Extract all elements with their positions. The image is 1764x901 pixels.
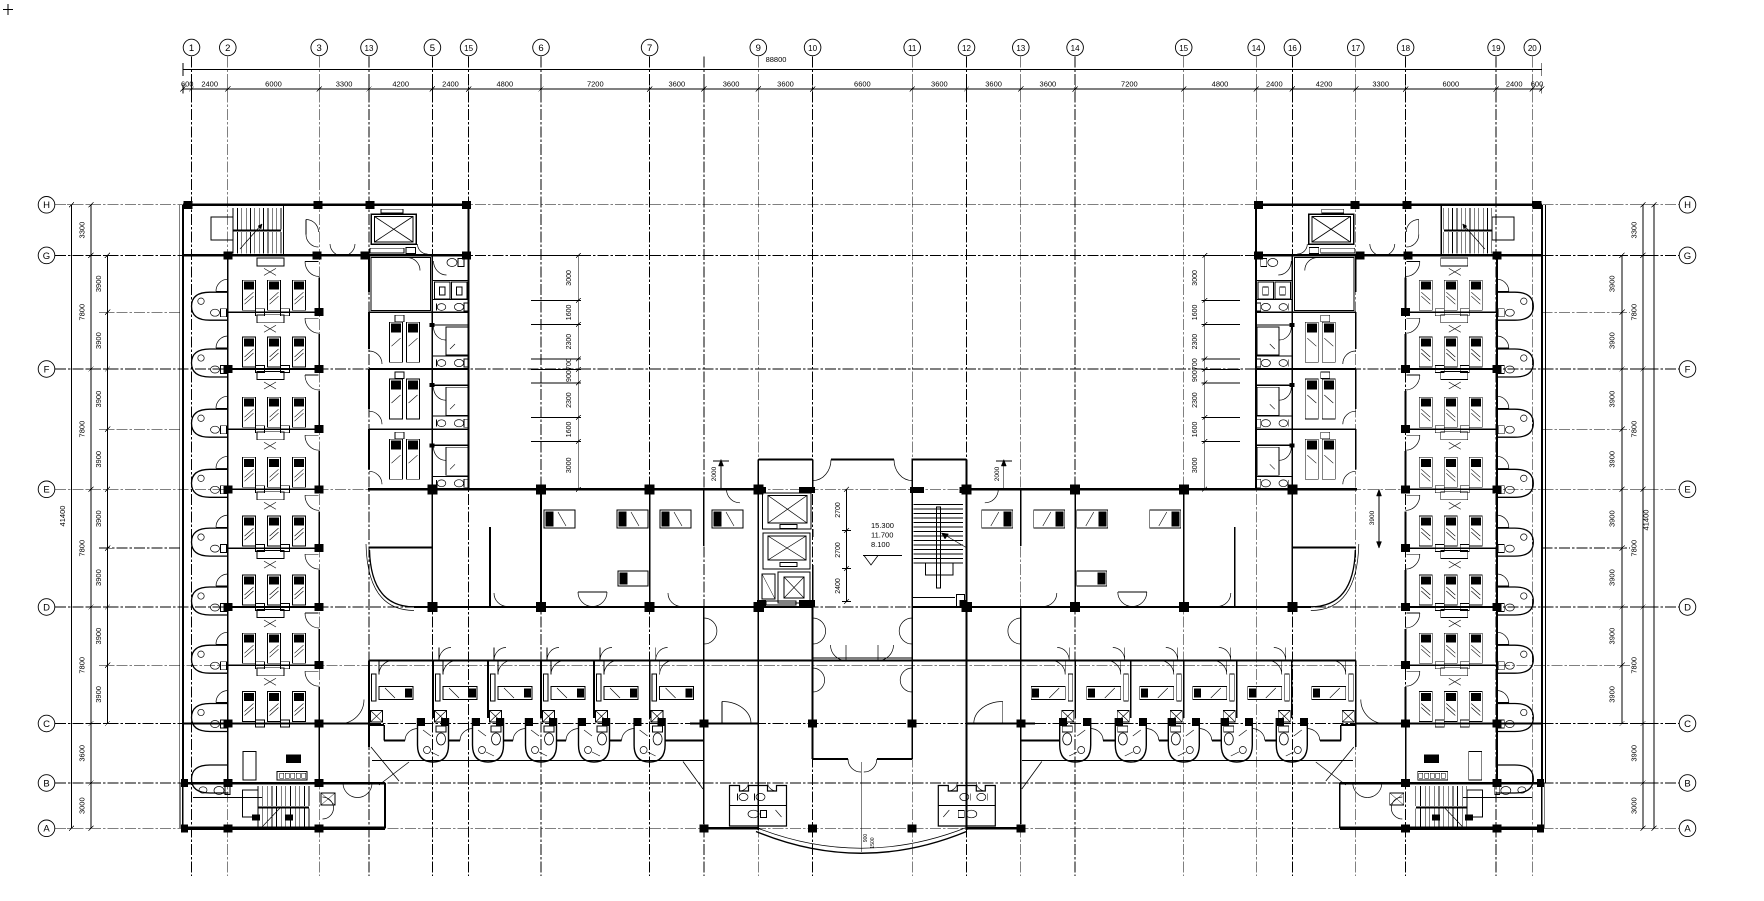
svg-text:11: 11 xyxy=(908,44,917,53)
svg-text:18: 18 xyxy=(1401,44,1410,53)
svg-text:600: 600 xyxy=(181,80,194,89)
svg-text:5: 5 xyxy=(430,43,435,54)
svg-text:13: 13 xyxy=(365,44,374,53)
svg-text:3900: 3900 xyxy=(1608,391,1617,408)
svg-text:17: 17 xyxy=(1351,44,1360,53)
svg-text:3900: 3900 xyxy=(1630,745,1639,762)
svg-text:2000: 2000 xyxy=(711,466,718,481)
svg-text:1600: 1600 xyxy=(1192,305,1199,321)
svg-text:7800: 7800 xyxy=(1630,657,1639,674)
svg-text:3600: 3600 xyxy=(985,80,1002,89)
svg-text:2700: 2700 xyxy=(835,542,842,558)
svg-text:7800: 7800 xyxy=(78,657,87,674)
svg-text:2000: 2000 xyxy=(994,466,1001,481)
svg-text:7800: 7800 xyxy=(1630,540,1639,557)
svg-text:3900: 3900 xyxy=(1608,569,1617,586)
svg-text:19: 19 xyxy=(1492,44,1501,53)
svg-text:3900: 3900 xyxy=(1369,510,1376,525)
svg-text:3000: 3000 xyxy=(1630,797,1639,814)
svg-text:2300: 2300 xyxy=(566,334,573,350)
svg-text:G: G xyxy=(1684,251,1691,262)
svg-text:4800: 4800 xyxy=(496,80,513,89)
svg-text:1: 1 xyxy=(189,43,194,54)
svg-text:900: 900 xyxy=(1192,370,1199,382)
svg-text:3900: 3900 xyxy=(1608,275,1617,292)
svg-text:3600: 3600 xyxy=(777,80,794,89)
svg-text:3000: 3000 xyxy=(566,457,573,473)
svg-text:900: 900 xyxy=(863,834,869,843)
svg-text:7800: 7800 xyxy=(78,540,87,557)
svg-text:3: 3 xyxy=(317,43,322,54)
svg-text:3900: 3900 xyxy=(94,569,103,586)
svg-text:3000: 3000 xyxy=(1192,270,1199,286)
svg-text:14: 14 xyxy=(1071,44,1080,53)
svg-text:700: 700 xyxy=(1192,358,1199,370)
svg-text:3900: 3900 xyxy=(1608,628,1617,645)
svg-text:3900: 3900 xyxy=(1608,686,1617,703)
svg-text:9: 9 xyxy=(756,43,761,54)
svg-text:3900: 3900 xyxy=(94,686,103,703)
svg-text:2: 2 xyxy=(225,43,230,54)
svg-text:2700: 2700 xyxy=(835,502,842,518)
svg-text:3600: 3600 xyxy=(1040,80,1057,89)
svg-text:3300: 3300 xyxy=(1630,222,1639,239)
svg-text:20: 20 xyxy=(1528,44,1537,53)
svg-text:7800: 7800 xyxy=(78,421,87,438)
svg-text:3600: 3600 xyxy=(78,745,87,762)
svg-text:2400: 2400 xyxy=(835,578,842,594)
svg-text:10: 10 xyxy=(808,44,817,53)
svg-text:3600: 3600 xyxy=(931,80,948,89)
svg-text:6000: 6000 xyxy=(1442,80,1459,89)
svg-text:2300: 2300 xyxy=(1192,334,1199,350)
svg-text:C: C xyxy=(43,719,50,730)
svg-text:16: 16 xyxy=(1288,44,1297,53)
svg-text:3900: 3900 xyxy=(94,510,103,527)
svg-text:E: E xyxy=(43,485,49,496)
svg-text:11.700: 11.700 xyxy=(871,531,893,540)
svg-text:H: H xyxy=(1684,200,1691,211)
svg-text:4200: 4200 xyxy=(392,80,409,89)
svg-text:A: A xyxy=(1684,824,1691,835)
svg-text:D: D xyxy=(43,602,50,613)
svg-text:15: 15 xyxy=(464,44,473,53)
svg-text:7200: 7200 xyxy=(1121,80,1138,89)
svg-text:A: A xyxy=(43,824,50,835)
svg-text:12: 12 xyxy=(962,44,971,53)
svg-text:41400: 41400 xyxy=(58,506,67,527)
svg-text:6000: 6000 xyxy=(265,80,282,89)
svg-text:F: F xyxy=(44,364,50,375)
svg-text:4800: 4800 xyxy=(1212,80,1229,89)
svg-text:7: 7 xyxy=(647,43,652,54)
svg-text:15: 15 xyxy=(1179,44,1188,53)
svg-text:2400: 2400 xyxy=(201,80,218,89)
svg-text:3000: 3000 xyxy=(1192,457,1199,473)
svg-text:G: G xyxy=(43,251,50,262)
svg-text:3900: 3900 xyxy=(1608,451,1617,468)
svg-text:2400: 2400 xyxy=(442,80,459,89)
svg-text:E: E xyxy=(1684,485,1690,496)
svg-text:H: H xyxy=(43,200,50,211)
svg-text:2400: 2400 xyxy=(1266,80,1283,89)
svg-text:7800: 7800 xyxy=(1630,421,1639,438)
svg-text:700: 700 xyxy=(566,358,573,370)
svg-text:15.300: 15.300 xyxy=(871,521,894,530)
svg-text:4200: 4200 xyxy=(1316,80,1333,89)
svg-text:3600: 3600 xyxy=(723,80,740,89)
svg-text:7800: 7800 xyxy=(1630,304,1639,321)
svg-text:7800: 7800 xyxy=(78,304,87,321)
svg-text:14: 14 xyxy=(1252,44,1261,53)
svg-text:3900: 3900 xyxy=(94,628,103,645)
svg-text:3300: 3300 xyxy=(336,80,353,89)
svg-text:3000: 3000 xyxy=(78,797,87,814)
svg-text:600: 600 xyxy=(1531,80,1544,89)
svg-text:3900: 3900 xyxy=(94,332,103,349)
svg-text:6600: 6600 xyxy=(854,80,871,89)
svg-text:3000: 3000 xyxy=(566,270,573,286)
svg-text:2400: 2400 xyxy=(1506,80,1523,89)
svg-text:D: D xyxy=(1684,602,1691,613)
svg-text:88800: 88800 xyxy=(766,55,787,64)
svg-text:1600: 1600 xyxy=(566,305,573,321)
svg-text:7200: 7200 xyxy=(587,80,604,89)
svg-text:3600: 3600 xyxy=(668,80,685,89)
svg-text:2300: 2300 xyxy=(566,392,573,408)
svg-text:3300: 3300 xyxy=(78,222,87,239)
svg-text:1600: 1600 xyxy=(1192,422,1199,438)
svg-text:13: 13 xyxy=(1016,44,1025,53)
svg-text:8.100: 8.100 xyxy=(871,540,890,549)
svg-text:3900: 3900 xyxy=(1608,332,1617,349)
svg-text:1600: 1600 xyxy=(566,422,573,438)
svg-text:2300: 2300 xyxy=(1192,392,1199,408)
svg-text:B: B xyxy=(1684,778,1690,789)
svg-text:900: 900 xyxy=(566,370,573,382)
svg-text:3900: 3900 xyxy=(94,391,103,408)
svg-text:6: 6 xyxy=(538,43,543,54)
svg-text:3900: 3900 xyxy=(94,275,103,292)
svg-text:C: C xyxy=(1684,719,1691,730)
svg-text:F: F xyxy=(1685,364,1691,375)
svg-text:1500: 1500 xyxy=(870,837,876,848)
svg-text:41400: 41400 xyxy=(1642,510,1651,531)
svg-text:3900: 3900 xyxy=(94,451,103,468)
svg-text:B: B xyxy=(43,778,49,789)
svg-text:3300: 3300 xyxy=(1372,80,1389,89)
svg-text:3900: 3900 xyxy=(1608,510,1617,527)
